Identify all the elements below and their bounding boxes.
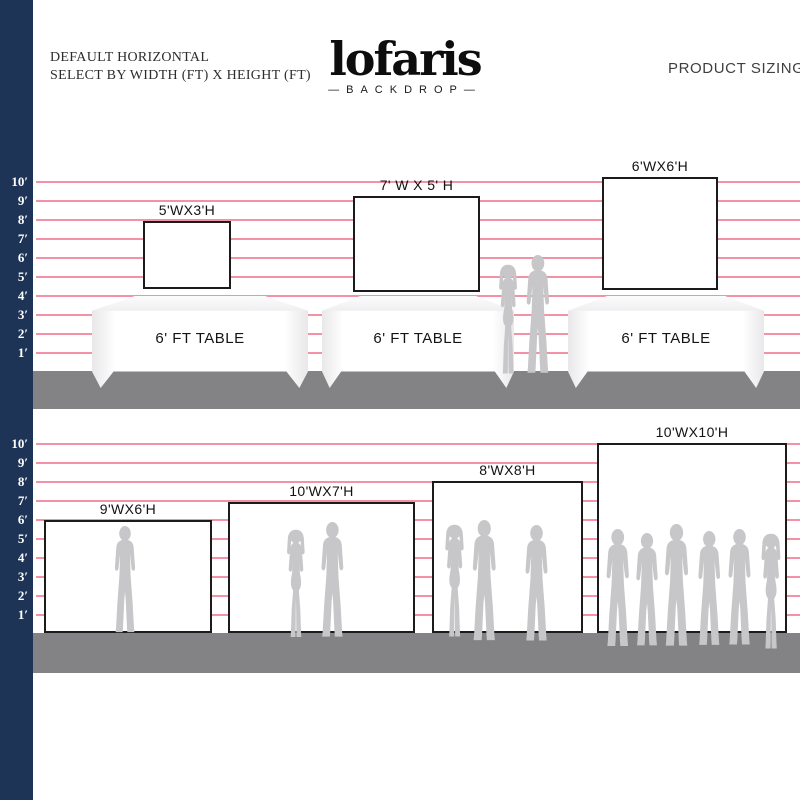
group-of-six-silhouette <box>599 519 787 651</box>
scale-label: 4′ <box>0 288 28 303</box>
backdrop-rect-5x3 <box>143 221 231 289</box>
scale-label: 1′ <box>0 607 28 622</box>
backdrop-label-8x8: 8'WX8'H <box>422 462 593 478</box>
scale-label: 5′ <box>0 269 28 284</box>
man-silhouette <box>665 524 688 646</box>
woman-silhouette <box>287 530 305 637</box>
table-3: 6' FT TABLE <box>568 296 764 388</box>
scale-label: 3′ <box>0 569 28 584</box>
couple-silhouette-top <box>489 254 567 376</box>
man-silhouette <box>115 526 135 632</box>
scale-label: 3′ <box>0 307 28 322</box>
scale-label: 6′ <box>0 512 28 527</box>
product-sizing-label: PRODUCT SIZING <box>668 60 798 77</box>
brand-subtitle: —BACKDROP— <box>295 84 515 96</box>
man-silhouette <box>729 529 751 644</box>
table-3-label: 6' FT TABLE <box>568 330 764 347</box>
woman-silhouette <box>445 525 463 637</box>
product-sizing-chart: DEFAULT HORIZONTAL SELECT BY WIDTH (FT) … <box>0 0 800 800</box>
woman-silhouette <box>762 534 781 649</box>
scale-label: 9′ <box>0 455 28 470</box>
brand-logo: lofaris —BACKDROP— <box>295 34 515 96</box>
scale-label: 5′ <box>0 531 28 546</box>
scale-label: 2′ <box>0 588 28 603</box>
scale-label: 8′ <box>0 474 28 489</box>
backdrop-label-7x5: 7' W X 5' H <box>343 177 490 193</box>
man-silhouette <box>607 529 629 646</box>
couple-silhouette-bottom <box>278 520 368 639</box>
chart-title-line1: DEFAULT HORIZONTAL <box>50 49 311 67</box>
man-silhouette <box>526 525 548 640</box>
table-2-label: 6' FT TABLE <box>322 330 514 347</box>
woman-silhouette <box>499 265 517 374</box>
scale-label: 10′ <box>0 436 28 451</box>
chart-title-line2: SELECT BY WIDTH (FT) X HEIGHT (FT) <box>50 67 311 85</box>
table-1: 6' FT TABLE <box>92 296 308 388</box>
backdrop-label-6x6: 6'WX6'H <box>592 158 728 174</box>
group-of-three-silhouette <box>438 517 572 643</box>
backdrop-label-5x3: 5'WX3'H <box>133 202 241 218</box>
table-2: 6' FT TABLE <box>322 296 514 388</box>
brand-wordmark: lofaris <box>295 34 515 84</box>
tabletop <box>92 296 308 311</box>
single-man-silhouette <box>100 526 156 634</box>
scale-label: 7′ <box>0 493 28 508</box>
scale-sidebar <box>0 0 33 800</box>
backdrop-label-9x6: 9'WX6'H <box>34 501 222 517</box>
scale-label: 1′ <box>0 345 28 360</box>
man-silhouette <box>473 520 496 640</box>
backdrop-label-10x7: 10'WX7'H <box>218 483 425 499</box>
scale-label: 8′ <box>0 212 28 227</box>
scale-label: 4′ <box>0 550 28 565</box>
backdrop-label-10x10: 10'WX10'H <box>587 424 797 440</box>
man-silhouette <box>636 533 657 645</box>
table-1-label: 6' FT TABLE <box>92 330 308 347</box>
chart-title: DEFAULT HORIZONTAL SELECT BY WIDTH (FT) … <box>50 49 311 85</box>
scale-label: 10′ <box>0 174 28 189</box>
scale-label: 6′ <box>0 250 28 265</box>
scale-label: 7′ <box>0 231 28 246</box>
backdrop-rect-6x6 <box>602 177 718 290</box>
man-silhouette <box>321 522 343 637</box>
scale-label: 2′ <box>0 326 28 341</box>
tabletop <box>322 296 514 311</box>
man-silhouette <box>527 255 549 373</box>
backdrop-rect-7x5 <box>353 196 480 292</box>
tabletop <box>568 296 764 311</box>
man-silhouette <box>698 531 720 645</box>
scale-label: 9′ <box>0 193 28 208</box>
